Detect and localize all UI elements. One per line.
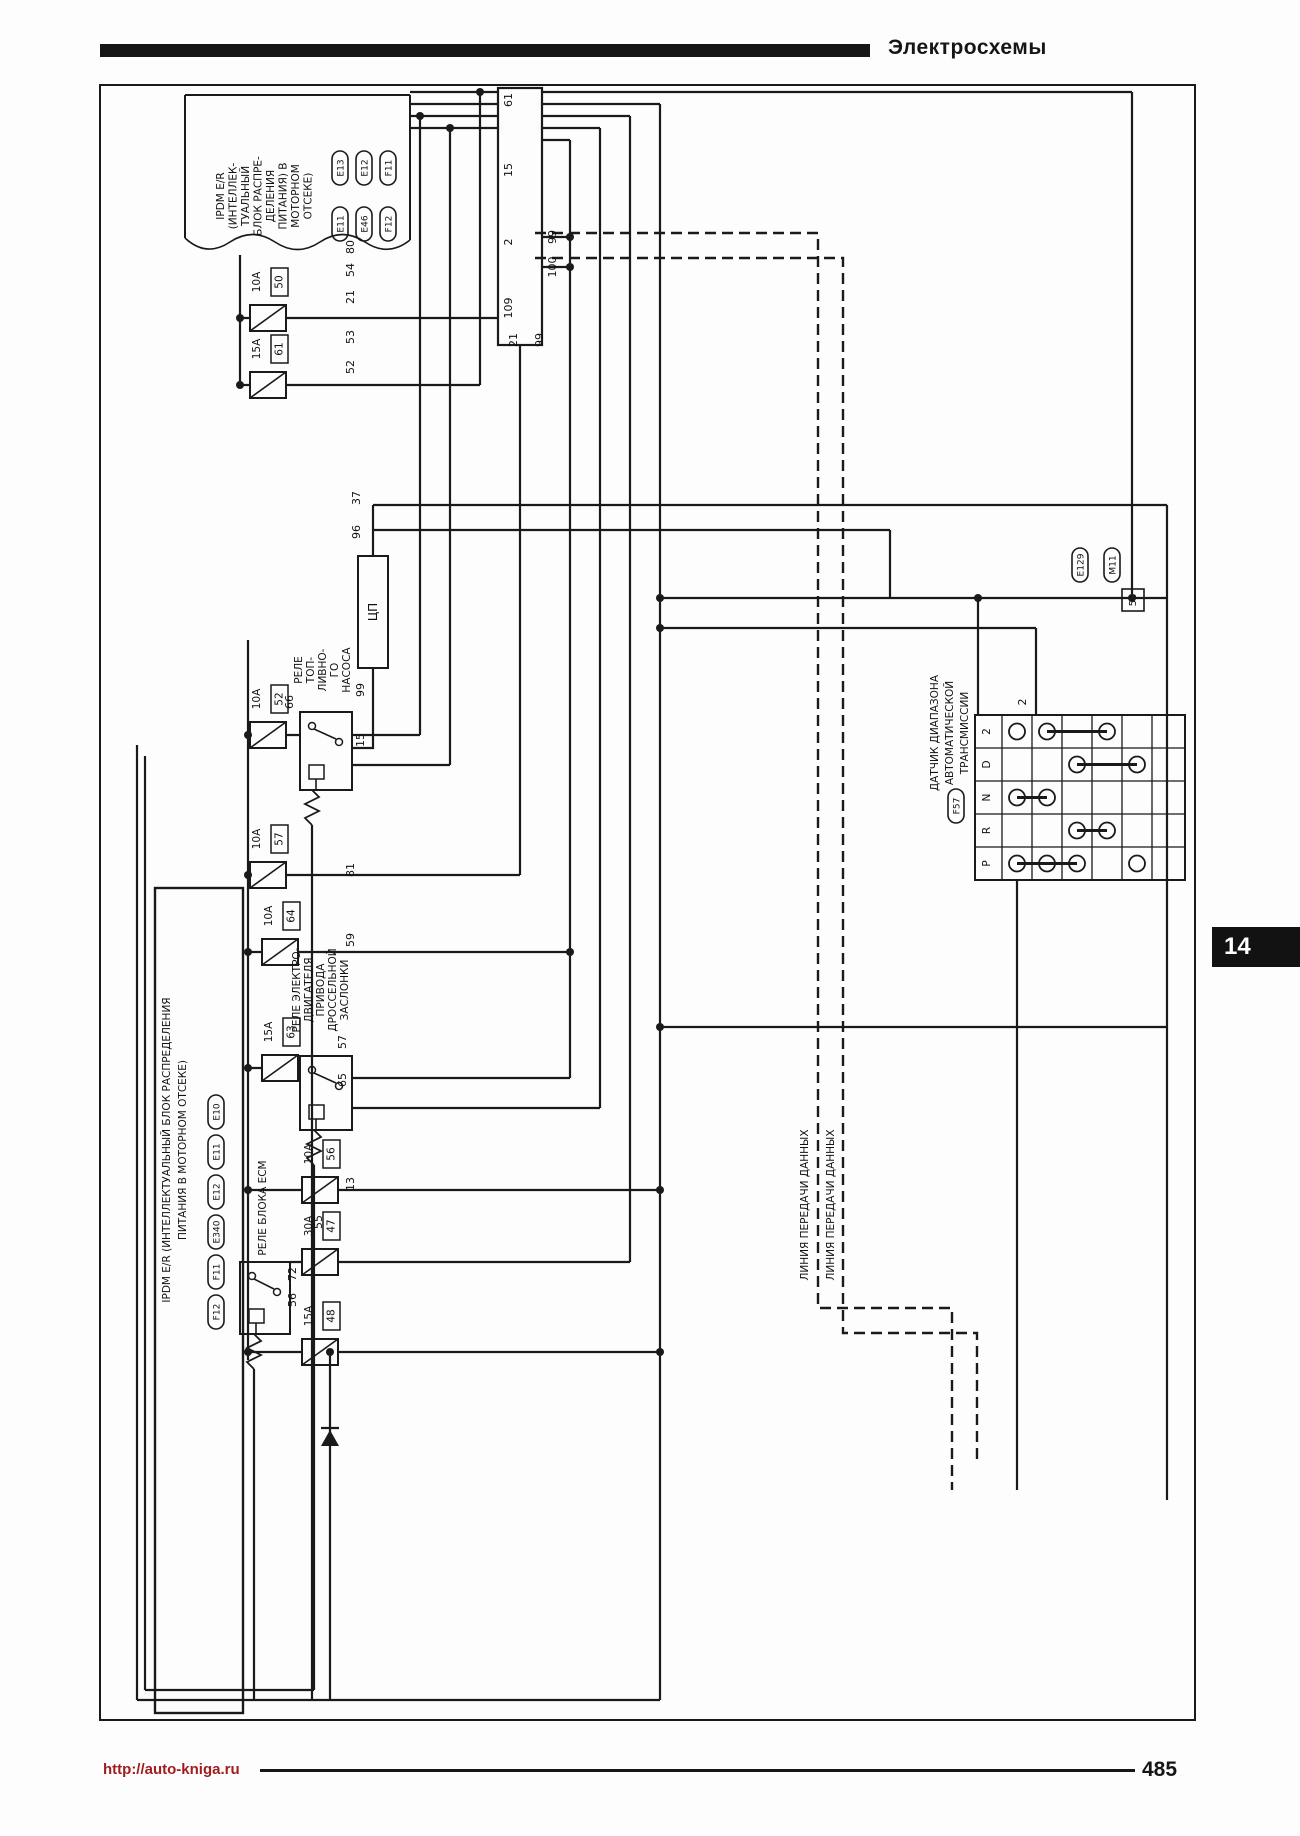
fuse-amp-label: 15A xyxy=(303,1305,315,1326)
connector-label: M11 xyxy=(1109,555,1119,574)
pin-number: 99 xyxy=(354,683,367,697)
pin-number: 55 xyxy=(312,1215,325,1229)
junction-dot xyxy=(244,871,252,879)
relay-arm xyxy=(314,729,336,739)
fuse-diagonal xyxy=(262,1055,298,1081)
at-sensor-label-line: ДАТЧИК ДИАПАЗОНА xyxy=(929,674,941,791)
pin-number: 21 xyxy=(507,333,520,347)
ipdm-top-label-line: IPDM E/R xyxy=(215,172,227,219)
relay-name-line: ДВИГАТЕЛЯ xyxy=(303,957,315,1022)
data-line-label: ЛИНИЯ ПЕРЕДАЧИ ДАННЫХ xyxy=(799,1129,811,1280)
gear-position-label: D xyxy=(981,760,993,768)
fuse-diagonal xyxy=(250,305,286,331)
pin-number: 53 xyxy=(344,330,357,344)
gear-position-label: N xyxy=(981,794,993,802)
junction-dot xyxy=(244,948,252,956)
pin-number: 65 xyxy=(336,1073,349,1087)
fuse-amp-label: 10A xyxy=(251,688,263,709)
fuse-diagonal xyxy=(302,1177,338,1203)
ipdm-top-label-line: МОТОРНОМ xyxy=(290,164,302,228)
junction-dot xyxy=(1128,594,1136,602)
relay-box xyxy=(300,1056,352,1130)
break-wave xyxy=(185,235,410,250)
pin-number: 66 xyxy=(283,695,296,709)
fuse-number: 48 xyxy=(326,1309,338,1322)
connector-label: E46 xyxy=(361,215,371,232)
relay-name-line: НАСОСА xyxy=(341,647,353,693)
fuse-number: 61 xyxy=(274,342,286,355)
relay-name-line: ЛИВНО- xyxy=(317,648,329,691)
connector-label: E12 xyxy=(361,159,371,176)
connector-label: E13 xyxy=(337,159,347,176)
junction-dot xyxy=(656,594,664,602)
connector-label: E12 xyxy=(213,1183,223,1200)
fuse-amp-label: 10A xyxy=(251,828,263,849)
fuse-number: 50 xyxy=(274,275,286,288)
relay-name-line: ГО xyxy=(329,663,341,678)
junction-dot xyxy=(446,124,454,132)
fuse-diagonal xyxy=(302,1249,338,1275)
relay-name-line: РЕЛЕ ЭЛЕКТРО- xyxy=(291,947,303,1032)
fuse-amp-label: 10A xyxy=(263,905,275,926)
junction-dot xyxy=(476,88,484,96)
junction-dot xyxy=(244,1186,252,1194)
junction-dot xyxy=(244,1348,252,1356)
wiring-diagram: ЦП IPDM E/R(ИНТЕЛЛЕК-ТУАЛЬНЫЙБЛОК РАСПРЕ… xyxy=(0,0,1300,1836)
relay-contact xyxy=(336,739,343,746)
contact-pin xyxy=(1129,856,1145,872)
ipdm-top-label-line: ПИТАНИЯ) В xyxy=(278,162,290,229)
junction-dot xyxy=(326,1348,334,1356)
pin-number: 109 xyxy=(502,298,515,319)
pin-number: 56 xyxy=(286,1293,299,1307)
junction-dot xyxy=(656,1348,664,1356)
cpu-label: ЦП xyxy=(366,603,380,621)
wires-solid xyxy=(137,92,1167,1700)
pin-number: 72 xyxy=(286,1267,299,1281)
data-line-label: ЛИНИЯ ПЕРЕДАЧИ ДАННЫХ xyxy=(825,1129,837,1280)
scanned-manual-page: Электросхемы 14 http://auto-kniga.ru 485… xyxy=(0,0,1300,1836)
fuse-amp-label: 15A xyxy=(251,338,263,359)
pin-number: 81 xyxy=(344,863,357,877)
relay-name-line: ДРОССЕЛЬНОЙ xyxy=(326,948,339,1031)
ipdm-top-label-line: БЛОК РАСПРЕ- xyxy=(253,156,265,236)
junction-dot xyxy=(244,1064,252,1072)
fuse-diagonal xyxy=(250,372,286,398)
relay-arm xyxy=(254,1279,274,1289)
fuse-diagonal xyxy=(250,862,286,888)
connector-label: F12 xyxy=(385,216,395,233)
relay-name-line: РЕЛЕ xyxy=(293,656,305,684)
junction-dot xyxy=(416,112,424,120)
connector-label: E340 xyxy=(213,1220,223,1243)
gear-position-label: P xyxy=(981,860,993,866)
connector-label: E11 xyxy=(213,1143,223,1160)
relay-name-line: РЕЛЕ БЛОКА ECM xyxy=(257,1160,269,1255)
junction-dot xyxy=(566,948,574,956)
fuse-diagonal xyxy=(250,722,286,748)
pin-number: 96 xyxy=(350,525,363,539)
pin-number: 99 xyxy=(546,230,559,244)
pin-number: 54 xyxy=(344,263,357,277)
ipdm-top-label-line: ТУАЛЬНЫЙ xyxy=(239,166,252,227)
ipdm-left-label-line: ПИТАНИЯ В МОТОРНОМ ОТСЕКЕ) xyxy=(177,1060,189,1240)
fuse-number: 56 xyxy=(326,1147,338,1161)
connector-label: E129 xyxy=(1077,553,1087,576)
pin-number: 100 xyxy=(546,257,559,278)
at-sensor-label-line: АВТОМАТИЧЕСКОЙ xyxy=(943,681,956,785)
pin-number: 59 xyxy=(344,933,357,947)
ipdm-top-label-line: (ИНТЕЛЛЕК- xyxy=(228,163,240,230)
pin-number: 15 xyxy=(354,733,367,747)
pin-number: 15 xyxy=(502,163,515,177)
gear-position-label: 2 xyxy=(981,728,993,735)
pin-number: 57 xyxy=(336,1035,349,1049)
diode-icon xyxy=(321,1428,339,1446)
junction-dot xyxy=(566,263,574,271)
resistor-zigzag-icon xyxy=(305,790,319,825)
at-sensor-label-line: ТРАНСМИССИИ xyxy=(959,692,971,775)
connector-label: F12 xyxy=(213,1304,223,1321)
junction-dot xyxy=(656,1186,664,1194)
ipdm-top-label-line: ДЕЛЕНИЯ xyxy=(265,170,277,222)
fuse-amp-label: 15A xyxy=(263,1021,275,1042)
junction-dot xyxy=(236,381,244,389)
pin-number: 99 xyxy=(533,333,546,347)
relay-box xyxy=(300,712,352,790)
contact-pin xyxy=(1009,724,1025,740)
pin-number: 21 xyxy=(344,290,357,304)
pin-number: 80 xyxy=(344,240,357,254)
relay-name-line: ПРИВОДА xyxy=(315,963,327,1017)
connector-label: E10 xyxy=(213,1103,223,1120)
connector-label: F57 xyxy=(953,798,963,815)
junction-dot xyxy=(974,594,982,602)
connector-label: F11 xyxy=(213,1264,223,1281)
fuse-number: 64 xyxy=(286,909,298,923)
relay-contact xyxy=(274,1289,281,1296)
junction-dot xyxy=(236,314,244,322)
fuse-number: 57 xyxy=(274,832,286,845)
relay-coil xyxy=(309,765,324,779)
connector-label: F11 xyxy=(385,160,395,177)
pin-number: 52 xyxy=(344,360,357,374)
relay-coil xyxy=(249,1309,264,1323)
ipdm-left-label-line: IPDM E/R (ИНТЕЛЛЕКТУАЛЬНЫЙ БЛОК РАСПРЕДЕ… xyxy=(160,997,173,1302)
pin-number: 2 xyxy=(1016,699,1029,706)
pin-number: 37 xyxy=(350,491,363,505)
connector-label: E11 xyxy=(337,215,347,232)
pin-number: 13 xyxy=(344,1177,357,1191)
relay-name-line: ЗАСЛОНКИ xyxy=(339,960,351,1021)
wires-data-dashed xyxy=(535,233,977,1490)
relay-name-line: ТОП- xyxy=(305,657,317,685)
fuse-number: 47 xyxy=(326,1219,338,1232)
junction-dot xyxy=(566,233,574,241)
junction-dot xyxy=(656,624,664,632)
junction-dot xyxy=(656,1023,664,1031)
gear-position-label: R xyxy=(981,827,993,834)
fuse-amp-label: 10A xyxy=(251,271,263,292)
pin-number: 61 xyxy=(502,93,515,107)
relay-arm xyxy=(314,1073,336,1083)
junction-dot xyxy=(244,731,252,739)
pin-number: 2 xyxy=(502,239,515,246)
ipdm-top-label-line: ОТСЕКЕ) xyxy=(303,173,315,220)
